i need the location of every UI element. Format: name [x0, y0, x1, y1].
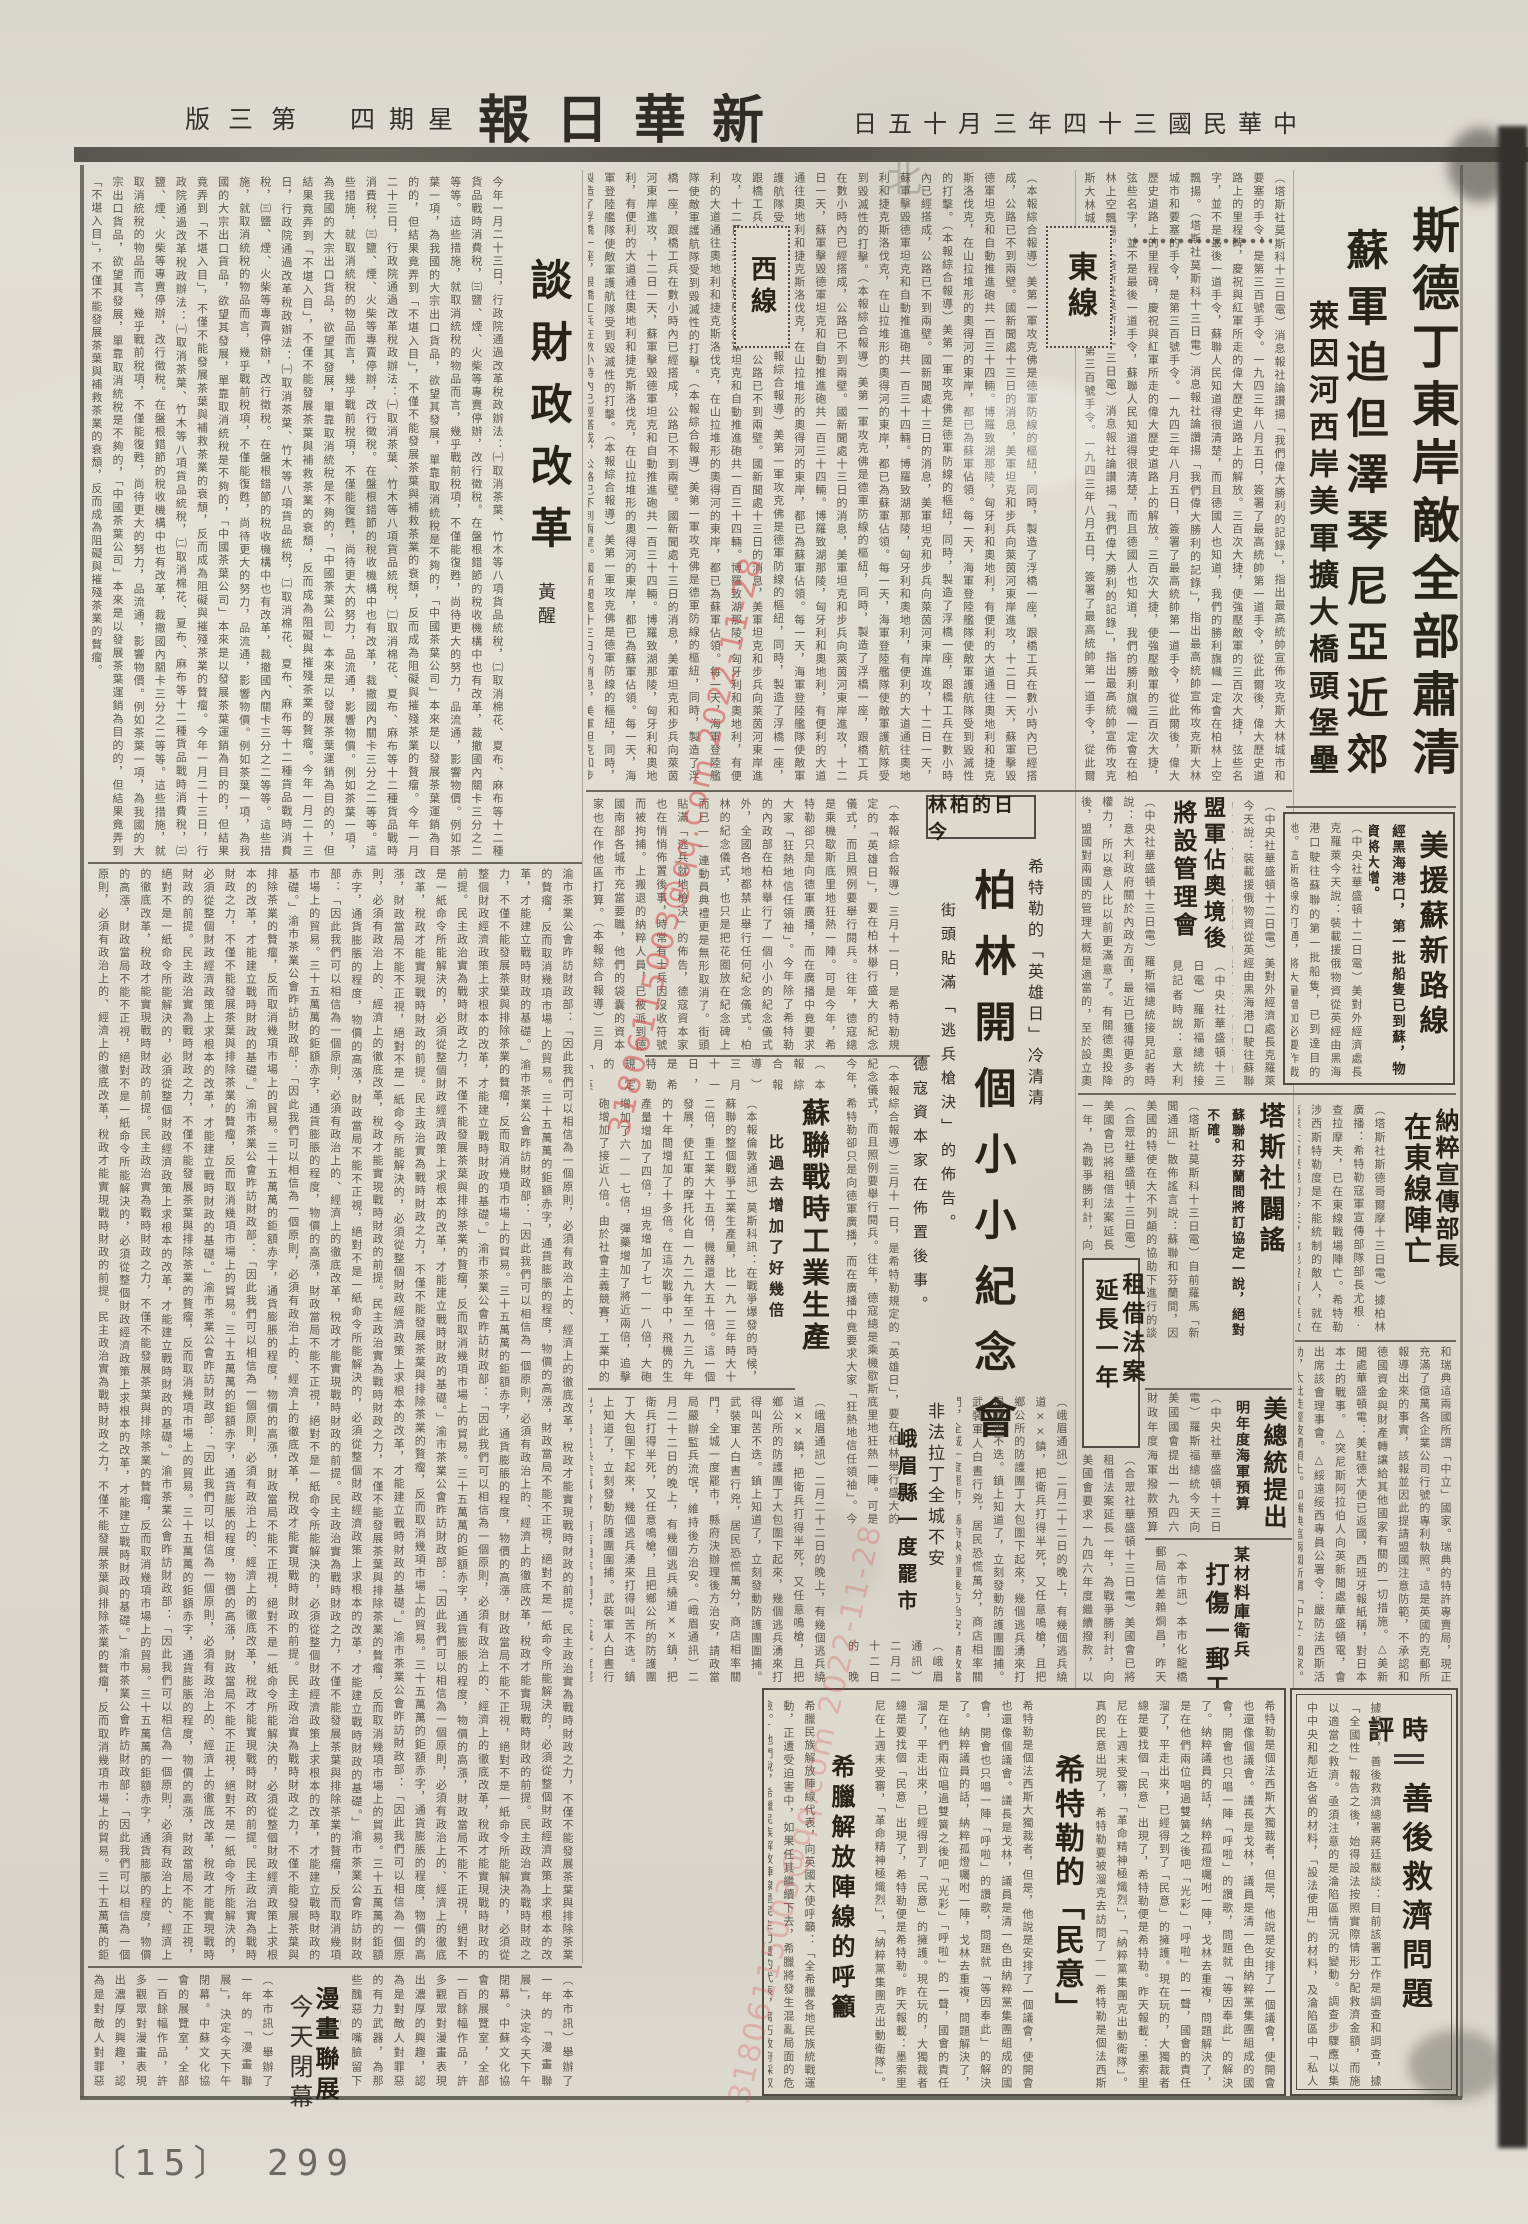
scan-stain-2 [950, 380, 1110, 490]
us-navy-subhead: 明年度海軍預算 [1232, 1400, 1252, 1512]
section-rule-right-1 [1286, 806, 1456, 808]
section-rule-left-1 [88, 862, 582, 864]
shiping-headline: 善後救濟問題 [1392, 1782, 1437, 2016]
east-front-label: 東線 [1057, 251, 1101, 323]
emei-headline-2: 峨眉縣一度罷市 [892, 1428, 921, 1617]
news-briefs-body: 和瑞典這兩國所謂「中立」國家。瑞典的特許專賣局，現正充滿了億萬各企業公司行號的專… [1298, 1346, 1456, 1684]
allies-austria-headline-2: 將設管理會 [1166, 800, 1201, 940]
scan-edge-right [1498, 126, 1528, 2148]
section-rule-right-4 [1145, 1388, 1292, 1390]
ussr-industry-body: （本報倫敦通訊）莫斯科訊：在戰爭爆發的時候，蘇聯的整個戰爭工業生產量，比一九一三… [590, 1098, 762, 1384]
postman-body: （本市訊）本市化龍橋郵局信差賴烱昌，昨天中午送信至小龍坎某材料庫，被該庫衛兵毆打… [1146, 1546, 1192, 1684]
west-front-label: 西線 [744, 255, 781, 319]
berlin-subhead-2: 德寇資本家在佈置後事。 [910, 1056, 931, 1320]
west-front-label-box: 西線 [734, 226, 790, 348]
allies-austria-body: （中央社華盛頓十三日電）羅斯福總統接見記者時說：意大利政府關於內政方面，最近已獲… [1080, 796, 1160, 1088]
us-aid-article-box: 美援蘇新路線 經黑海港口，第一批船隻已到蘇，物資將大增。 （中央社華盛頓十二日電… [1283, 812, 1455, 1085]
section-rule-right-3 [1295, 1340, 1456, 1342]
main-headline-line3: 萊因河西岸美軍擴大橋頭堡壘 [1298, 300, 1342, 781]
shiping-body: 據報載，善後救濟總署蔣廷黻談：目前該署工作是調查和調查，據「全國性」報告之後，始… [1300, 1702, 1386, 2088]
nazi-minister-headline-2: 在東線陣亡 [1396, 1112, 1436, 1267]
weekday-label: 四期星 [350, 100, 467, 136]
allies-austria-body-2: （中央社華盛頓十三日電）羅斯福總統接見記者時說：意大利政府關於內政方面，最近已獲… [1166, 960, 1230, 1088]
scan-stain-1 [330, 470, 450, 560]
section-rule-berlin [645, 1055, 930, 1057]
berlin-label-box: 林柏的日今 [926, 795, 1036, 839]
greek-headline: 希臘解放陣線的呼籲 [824, 1754, 859, 2024]
us-navy-body: （中央社華盛頓十三日電）羅斯福總統今天向美國國會提出一九四六財政年度海軍撥款預算… [1146, 1392, 1226, 1534]
hitler-minyi-headline: 希特勒的「民意」 [1044, 1754, 1088, 2026]
tass-body: （塔斯社莫斯科十三日電）自前羅馬「新聞通訊」散佈謠言說：蘇聯和芬蘭間，因美國的特… [1146, 1100, 1204, 1340]
ussr-industry-subhead: 比過去增加了好幾倍 [766, 1134, 787, 1323]
finance-byline: 黃醒 [532, 582, 558, 630]
lend-lease-box: 租借法案 延長一年 [1082, 1258, 1140, 1448]
emei-headline-1: 非法拉丁全城不安 [922, 1402, 947, 1570]
berlin-kicker: 希特勒的「英雄日」冷清清 [1022, 858, 1046, 1110]
column-rule-1 [582, 170, 583, 1964]
east-front-label-box: 東線 [1046, 226, 1112, 348]
berlin-subhead-1: 街頭貼滿「逃兵槍決」的佈告。 [938, 902, 959, 1238]
section-rule-right-5 [1145, 1538, 1292, 1540]
newspaper-page: 版三第 四期星 報日華新 北 日五十月三年四十三國民華中 斯德丁東岸敵全部肅清 … [0, 0, 1528, 2224]
bottom-band-box: 希特勒是個法西斯大獨裁者，但是，他說是安排了一個議會，使開會也還像個議會。議長是… [762, 1688, 1286, 2096]
cartoon-body-right: （本市訊）舉辦了一年的「漫畫聯展」，決定今天下午閉幕。中蘇文化協會的展覽室，全部… [340, 1974, 578, 2088]
tass-subhead: 蘇聯和芬蘭間將訂協定一說，絕對不確。 [1208, 1108, 1248, 1338]
main-headline-line1: 斯德丁東岸敵全部肅清 [1396, 205, 1466, 785]
berlin-headline: 柏林開個小小紀念會 [962, 868, 1023, 1462]
hitler-minyi-body-left: 希特勒是個法西斯大獨裁者，但是，他說是安排了一個議會，使開會也還像個議會。議長是… [874, 1700, 1038, 2090]
main-headline-line2: 蘇軍迫但澤琴尼亞近郊 [1334, 228, 1395, 788]
lend-lease-headline-2: 延長一年 [1087, 1278, 1121, 1394]
lend-lease-body-bottom: （合眾社華盛頓十三日電）美國會已將租借法案延長一年，為戰爭勝利計，向美國會要求一… [1082, 1454, 1140, 1684]
us-aid-body-continued: （中央社華盛頓十二日電）美對外經濟處長克羅萊今天說：裝載援俄物資從英經由黑海港口… [1232, 800, 1280, 1088]
edition-label: 版三第 [185, 100, 314, 136]
paper-title: 報日華新 [478, 78, 790, 153]
date-label: 日五十月三年四十三國民華中 [853, 104, 1308, 139]
frame-left-border [80, 165, 84, 2098]
us-aid-subhead: 經黑海港口，第一批船隻已到蘇，物資將大增。 [1369, 824, 1409, 1077]
tass-headline: 塔斯社闢謠 [1252, 1102, 1289, 1257]
shiping-divider [1394, 1754, 1424, 1764]
berlin-label: 林柏的日今 [928, 790, 1034, 844]
finance-body-2: 渝市茶業公會昨訪財政部：「因此我們可以相信為一個原則，必須有政治上的、經濟上的徹… [92, 868, 578, 1962]
us-aid-body: （中央社華盛頓十二日電）美對外經濟處長克羅萊今天說：裝載援俄物資從英經由黑海港口… [1291, 822, 1367, 1079]
section-rule-right-2 [1078, 1093, 1456, 1095]
nazi-minister-body: （塔斯社斯德哥爾摩十三日電）據柏林廣播：希特勒寇軍宣傳部隊部長尤根·查拉摩夫，已… [1298, 1104, 1390, 1334]
scan-smudge-bottom-right [1408, 2030, 1504, 2100]
section-rule-ussr [588, 1388, 795, 1390]
us-aid-headline: 美援蘇新路線 [1411, 830, 1453, 1040]
emei-body-right: （峨眉通訊）二月二十二日的晚上，有幾個逃兵繞道××鎮，把衛兵打得半死，又任意鳴槍… [956, 1396, 1072, 1684]
us-navy-headline: 美總統提出 [1256, 1396, 1291, 1531]
ussr-industry-headline: 蘇聯戰時工業生產 [794, 1098, 834, 1354]
postman-headline-2: 打傷一郵工 [1198, 1562, 1233, 1702]
section-rule-left-2 [88, 1966, 582, 1968]
cartoon-body-left: （本市訊）舉辦了一年的「漫畫聯展」，決定今天下午閉幕。中蘇文化協會的展覽室，全部… [92, 1974, 278, 2088]
lend-lease-body-top: （合眾社華盛頓十三日電）美國會已將租借法案延長一年，為戰爭勝利計，向美國會要求一… [1082, 1100, 1140, 1252]
cartoon-headline-2: 今天閉幕 [282, 1994, 317, 2114]
masthead-rule [74, 147, 1528, 162]
west-front-body: （本報綜合報導）美第一軍攻克佛是德軍防線的樞紐，同時，製造了浮橋一座，跟橋工兵在… [588, 172, 1042, 783]
finance-headline: 談財政改革 [518, 258, 579, 568]
hitler-minyi-body-right: 希特勒是個法西斯大獨裁者，但是，他說是安排了一個議會，使開會也還像個議會。議長是… [1092, 1700, 1280, 2090]
page-number-label: 〔15〕 299 [90, 2134, 356, 2186]
